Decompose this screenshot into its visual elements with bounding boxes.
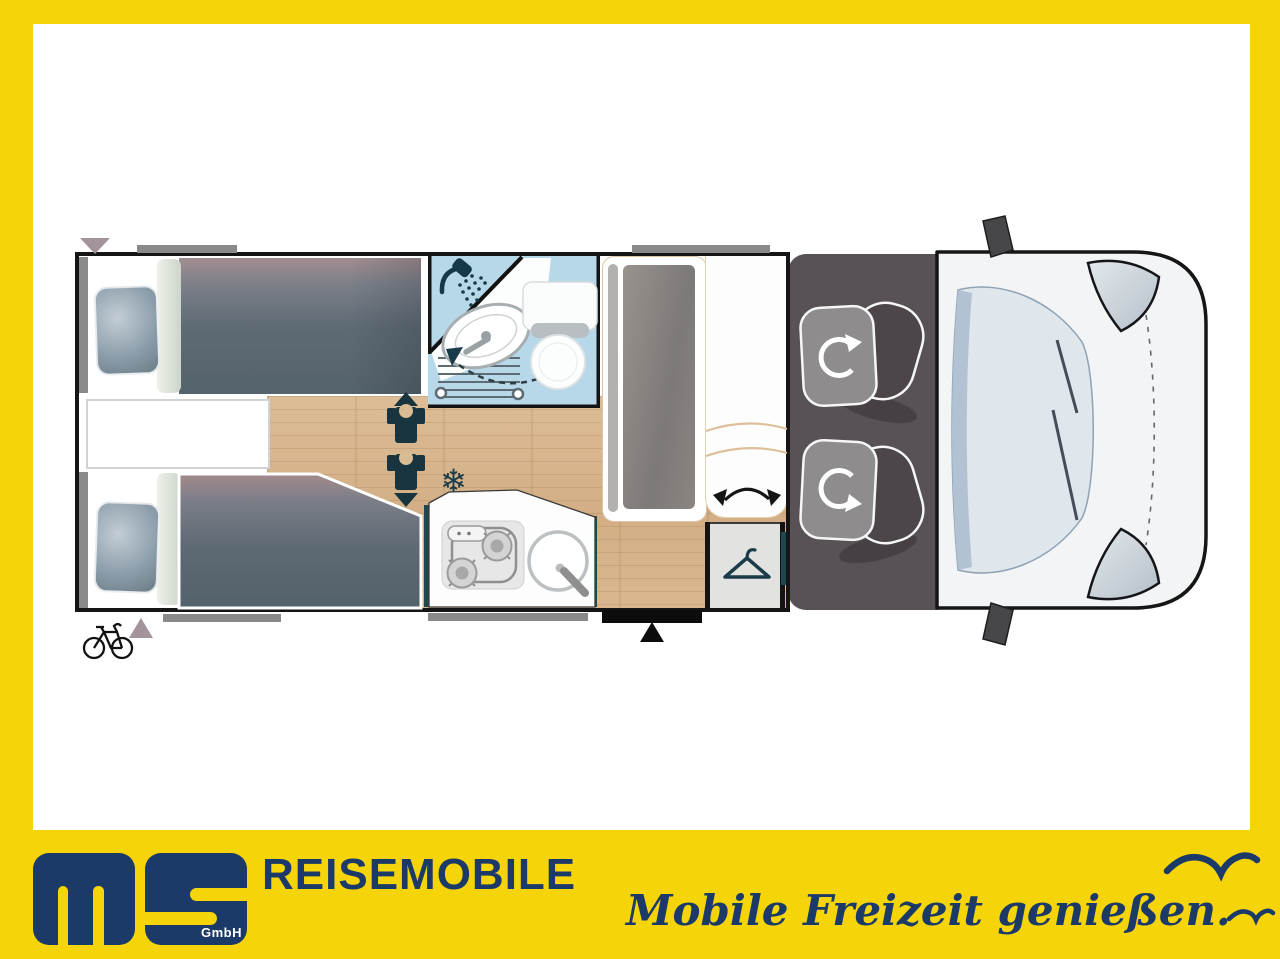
rear-direction-marker-top <box>80 238 110 254</box>
entry-door-marker <box>640 622 664 642</box>
roof-window-bar-rear <box>137 245 237 253</box>
habitation-outline <box>75 252 790 612</box>
rear-direction-marker-bottom <box>129 618 153 638</box>
logo-letter-m: ms <box>33 853 135 945</box>
company-name: REISEMOBILE <box>262 850 576 900</box>
side-window-bar-kitchen <box>428 613 588 621</box>
side-window-bar-rear <box>163 614 281 622</box>
logo-letter-s: GmbH <box>145 853 247 945</box>
logo-s-slot <box>190 888 247 901</box>
cab-floor <box>788 254 938 610</box>
seagull-icon <box>1229 911 1273 920</box>
logo-s-slot <box>145 912 217 925</box>
logo-gmbh-text: GmbH <box>201 925 242 940</box>
seagull-icon <box>1167 856 1257 875</box>
logo-m-slot <box>58 886 68 945</box>
slogan-text: Mobile Freizeit genießen. <box>626 886 1231 935</box>
dealer-floorplan-image: ❄ <box>0 0 1280 959</box>
logo-m-slot <box>93 886 104 945</box>
roof-window-bar-front <box>632 245 770 253</box>
